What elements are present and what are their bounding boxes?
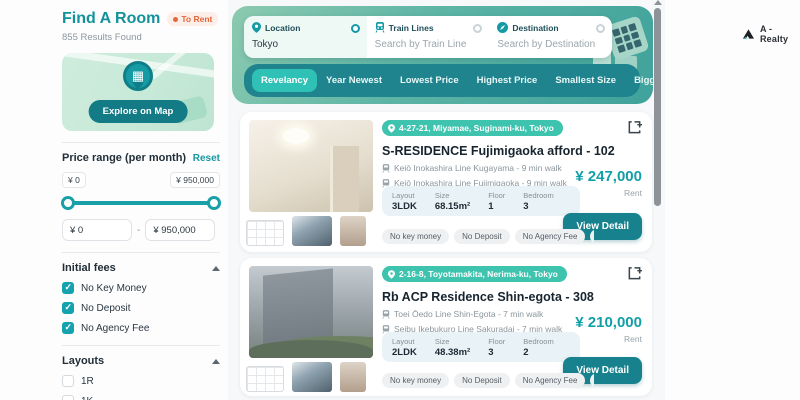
filter-layout-1k[interactable]: 1K — [62, 395, 220, 400]
explore-on-map-button[interactable]: Explore on Map — [89, 100, 188, 123]
price-max-input[interactable]: ¥ 950,000 — [145, 219, 215, 241]
exterior-thumbnail[interactable] — [292, 362, 332, 392]
floorplan-thumbnail[interactable] — [246, 366, 284, 392]
divider — [62, 252, 220, 253]
location-field[interactable]: Location Tokyo — [244, 16, 367, 58]
tag: Auto lock — [590, 229, 594, 244]
tag: No Agency Fee — [515, 373, 586, 388]
divider — [62, 345, 220, 346]
to-rent-badge: To Rent — [167, 12, 218, 26]
floorplan-thumbnail[interactable] — [246, 220, 284, 246]
tab-lowest-price[interactable]: Lowest Price — [391, 69, 468, 92]
reset-button[interactable]: Reset — [193, 153, 220, 164]
rent-label: Rent — [575, 188, 642, 198]
filter-no-deposit[interactable]: No Deposit — [62, 302, 220, 314]
collapse-caret-icon[interactable] — [212, 266, 220, 271]
brand-logo: A - Realty — [742, 24, 800, 44]
filter-sidebar: Find A Room To Rent 855 Results Found ▦ … — [62, 10, 220, 400]
pin-icon — [388, 270, 395, 279]
price-max-chip: ¥ 950,000 — [170, 172, 220, 188]
initial-fees-heading: Initial fees — [62, 262, 116, 274]
rent-price: ¥ 210,000 — [575, 314, 642, 331]
filter-layout-1r[interactable]: 1R — [62, 375, 220, 387]
search-header: Location Tokyo Train Lines Search by Tra… — [232, 6, 653, 104]
sort-tabs: Revelancy Year Newest Lowest Price Highe… — [244, 64, 640, 97]
location-label: Location — [265, 23, 300, 33]
tag: No Agency Fee — [515, 229, 586, 244]
checkbox-checked-icon[interactable] — [62, 302, 74, 314]
rent-label: Rent — [575, 334, 642, 344]
destination-placeholder[interactable]: Search by Destination — [497, 39, 604, 50]
feature-tags: No key money No Deposit No Agency Fee El… — [382, 373, 594, 388]
train-icon — [382, 164, 390, 173]
train-icon — [375, 22, 385, 33]
price-min-chip: ¥ 0 — [62, 172, 86, 188]
add-to-compare-icon[interactable] — [627, 120, 642, 135]
filter-no-key-money[interactable]: No Key Money — [62, 282, 220, 294]
rent-price: ¥ 247,000 — [575, 168, 642, 185]
brand-name: A - Realty — [760, 24, 800, 44]
train-icon — [382, 310, 390, 319]
listing-photo[interactable] — [249, 266, 373, 358]
location-pin-icon — [252, 22, 261, 33]
checkbox-icon[interactable] — [62, 395, 74, 400]
checkbox-icon[interactable] — [62, 375, 74, 387]
train-lines-placeholder[interactable]: Search by Train Line — [375, 39, 482, 50]
listing-title[interactable]: S-RESIDENCE Fujimigaoka afford - 102 — [382, 144, 642, 158]
listing-card[interactable]: 2-16-8, Toyotamakita, Nerima-ku, Tokyo R… — [240, 258, 652, 396]
slider-track — [66, 201, 216, 205]
location-value[interactable]: Tokyo — [252, 39, 359, 50]
tag: Elevator — [590, 373, 594, 388]
tab-year-newest[interactable]: Year Newest — [317, 69, 391, 92]
slider-handle-max[interactable] — [207, 196, 221, 210]
layouts-heading: Layouts — [62, 355, 104, 367]
train-lines-label: Train Lines — [389, 23, 434, 33]
add-to-compare-icon[interactable] — [627, 266, 642, 281]
address-badge: 2-16-8, Toyotamakita, Nerima-ku, Tokyo — [382, 266, 567, 282]
train-lines-field[interactable]: Train Lines Search by Train Line — [367, 16, 490, 58]
scrollbar-up-arrow[interactable] — [654, 0, 662, 5]
interior-thumbnail[interactable] — [340, 216, 366, 246]
page-title: Find A Room — [62, 10, 160, 28]
mountain-logo-icon — [742, 28, 755, 40]
destination-label: Destination — [512, 23, 558, 33]
listing-photo[interactable] — [249, 120, 373, 212]
price-range-separator: - — [137, 225, 140, 236]
search-bar: Location Tokyo Train Lines Search by Tra… — [244, 16, 612, 58]
map-preview[interactable]: ▦ Explore on Map — [62, 53, 214, 131]
price-range-slider[interactable] — [62, 196, 220, 210]
listing-card[interactable]: 4-27-21, Miyamae, Suginami-ku, Tokyo S-R… — [240, 112, 652, 252]
checkbox-checked-icon[interactable] — [62, 322, 74, 334]
exterior-thumbnail[interactable] — [292, 216, 332, 246]
tab-relevancy[interactable]: Revelancy — [252, 69, 317, 92]
tag: No key money — [382, 229, 449, 244]
specs-box: Layout2LDK Size48.38m² Floor3 Bedroom2 — [382, 332, 580, 362]
interior-thumbnail[interactable] — [340, 362, 366, 392]
filter-no-agency-fee[interactable]: No Agency Fee — [62, 322, 220, 334]
location-radio[interactable] — [351, 24, 360, 33]
destination-field[interactable]: Destination Search by Destination — [489, 16, 612, 58]
specs-box: Layout3LDK Size68.15m² Floor1 Bedroom3 — [382, 186, 580, 216]
tab-smallest-size[interactable]: Smallest Size — [546, 69, 625, 92]
divider — [62, 142, 220, 143]
tag: No Deposit — [454, 373, 510, 388]
collapse-caret-icon[interactable] — [212, 359, 220, 364]
results-count: 855 Results Found — [62, 32, 220, 43]
destination-compass-icon — [497, 22, 508, 33]
tab-highest-price[interactable]: Highest Price — [468, 69, 547, 92]
checkbox-checked-icon[interactable] — [62, 282, 74, 294]
destination-radio[interactable] — [596, 24, 605, 33]
listing-title[interactable]: Rb ACP Residence Shin-egota - 308 — [382, 290, 642, 304]
tab-biggest-size[interactable]: Biggest Size — [625, 69, 653, 92]
rent-dot-icon — [173, 17, 178, 22]
tag: No Deposit — [454, 229, 510, 244]
price-range-heading: Price range (per month) — [62, 152, 186, 164]
scrollbar-thumb[interactable] — [654, 8, 661, 206]
address-badge: 4-27-21, Miyamae, Suginami-ku, Tokyo — [382, 120, 563, 136]
map-pin-icon: ▦ — [123, 61, 153, 91]
price-min-input[interactable]: ¥ 0 — [62, 219, 132, 241]
tag: No key money — [382, 373, 449, 388]
pin-icon — [388, 124, 395, 133]
slider-handle-min[interactable] — [61, 196, 75, 210]
feature-tags: No key money No Deposit No Agency Fee Au… — [382, 229, 594, 244]
